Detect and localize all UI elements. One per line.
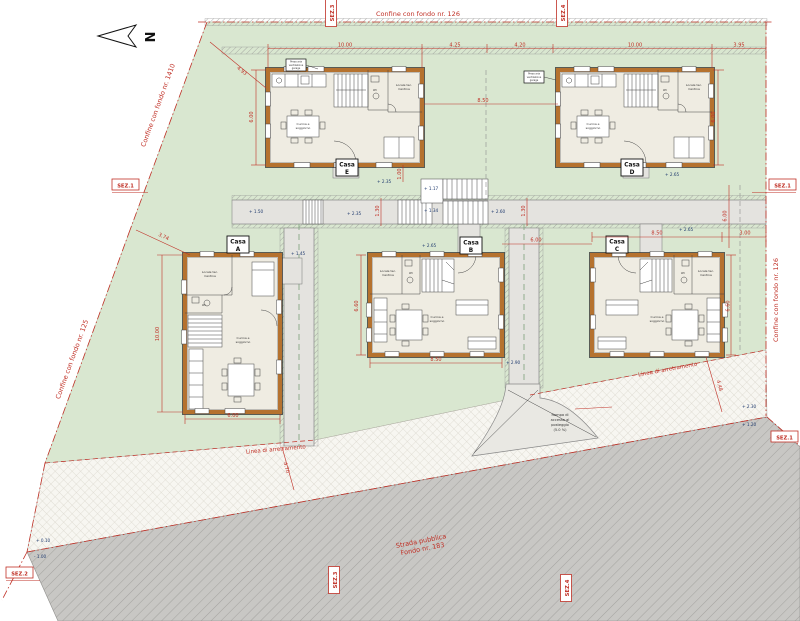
- dim-label: 1.30: [375, 205, 381, 216]
- elevation-label: + 2.65: [679, 227, 693, 232]
- casa-c-letter: C: [615, 247, 619, 253]
- tag-casa-b: Casa B: [460, 237, 482, 254]
- elevation-label: + 2.35: [377, 179, 391, 184]
- room-label-tech: Cantina: [204, 274, 216, 278]
- tag-casa-d: Casa D: [621, 159, 643, 176]
- entry-casa-c: [640, 224, 662, 255]
- casa-d-letter: D: [630, 170, 635, 176]
- room-label-living: soggiorno: [430, 319, 445, 323]
- tag-casa-e: Casa E: [336, 159, 358, 176]
- elevation-label: + 1.50: [249, 209, 263, 214]
- room-label-wc: WC: [681, 272, 685, 275]
- boundary-label-top: Confine con fondo nr. 126: [376, 10, 460, 18]
- sez1-label: SEZ.1: [117, 184, 134, 190]
- elevation-label: + 1.45: [291, 251, 305, 256]
- ramp-label-line: Rampa di: [551, 413, 568, 417]
- room-label-living: soggiorno: [586, 126, 601, 130]
- dim-label: 6.00: [530, 238, 541, 244]
- casa-a-plan: Locale tec. Cantina WC Cucina e soggiorn…: [182, 252, 283, 415]
- ramp-label-line: (5.0 %): [553, 428, 567, 432]
- elevation-label: + 2.65: [422, 243, 436, 248]
- tag-casa-c: Casa C: [606, 236, 628, 253]
- vent-note-line: garage: [292, 67, 301, 70]
- dim-label: 8.50: [430, 357, 441, 363]
- dim-label: 4.20: [514, 43, 525, 49]
- section-marker-sez3-top: SEZ.3: [326, 0, 337, 27]
- elevation-label: + 2.30: [742, 404, 756, 409]
- north-arrow: N: [98, 25, 156, 47]
- tag-casa-a: Casa A: [227, 236, 249, 253]
- dim-label: 8.50: [477, 98, 488, 104]
- boundary-label-right: Confine con fondo nr. 126: [772, 258, 780, 342]
- dim-label: 6.60: [726, 300, 732, 311]
- room-label-tech: Cantina: [398, 87, 410, 91]
- sez3-label: SEZ.3: [330, 4, 336, 21]
- casa-b-label: Casa: [463, 241, 479, 247]
- vent-note-line: garage: [530, 79, 539, 82]
- site-plan-drawing: Locale tec. Cantina WC Cucina e soggiorn…: [0, 0, 800, 621]
- casa-b-plan: Locale tec. Cantina WC Cucina e soggiorn…: [367, 252, 505, 358]
- dim-label: 8.50: [651, 231, 662, 237]
- elevation-label: + 2.65: [665, 172, 679, 177]
- north-letter: N: [141, 32, 156, 43]
- dim-label: 6.00: [227, 413, 238, 419]
- dim-label: 6.60: [354, 300, 360, 311]
- site-plan-canvas: Locale tec. Cantina WC Cucina e soggiorn…: [0, 0, 800, 621]
- room-label-wc: WC: [373, 89, 377, 92]
- casa-c-plan: Locale tec. Cantina WC Cucina e soggiorn…: [590, 252, 728, 358]
- room-label-tech: Cantina: [382, 273, 394, 277]
- section-marker-sez1-left: SEZ.1: [112, 179, 148, 193]
- ramp-label-line: posteggio: [551, 423, 569, 427]
- elevation-label: + 1.34: [424, 208, 438, 213]
- dim-label: 3.00: [739, 231, 750, 237]
- casa-e-plan: Locale tec. Cantina WC Cucina e soggiorn…: [266, 67, 425, 168]
- dim-label: 10.00: [155, 327, 161, 341]
- section-marker-sez4-bottom: SEZ.4: [561, 575, 572, 602]
- dim-label: 6.00: [711, 111, 717, 122]
- north-arrow-icon-outline: [98, 25, 136, 47]
- elevation-label: + 0.10: [36, 538, 50, 543]
- dim-label: 10.00: [628, 43, 642, 49]
- dim-label: 6.00: [249, 111, 255, 122]
- casa-c-label: Casa: [609, 240, 625, 246]
- ramp-label: Rampa di accesso al posteggio (5.0 %): [551, 413, 570, 432]
- dim-label: 4.25: [449, 43, 460, 49]
- elevation-label: + 2.60: [491, 209, 505, 214]
- upper-walk-strip: [222, 47, 766, 54]
- casa-e-letter: E: [345, 170, 349, 176]
- entry-casa-a: [280, 258, 302, 284]
- section-marker-sez4-top: SEZ.4: [557, 0, 568, 27]
- casa-a-letter: A: [236, 247, 241, 253]
- elevation-label: + 2.35: [347, 211, 361, 216]
- dim-label: 6.00: [723, 210, 729, 221]
- room-label-tech: Cantina: [688, 87, 700, 91]
- elevation-label: + 1.17: [424, 186, 438, 191]
- dim-label: 1.30: [521, 205, 527, 216]
- ramp-label-line: accesso al: [551, 418, 570, 422]
- sez1-label: SEZ.1: [774, 184, 791, 190]
- room-label-living: soggiorno: [650, 319, 665, 323]
- room-label-wc: WC: [202, 304, 206, 307]
- casa-e-label: Casa: [339, 163, 355, 169]
- room-label-living: soggiorno: [296, 126, 311, 130]
- room-label-living: soggiorno: [236, 340, 251, 344]
- sez1-label: SEZ.1: [776, 436, 793, 442]
- sez2-label: SEZ.2: [11, 572, 28, 578]
- casa-d-label: Casa: [624, 163, 640, 169]
- section-marker-sez1-right-bottom: SEZ.1: [771, 431, 798, 442]
- casa-d-plan: Locale tec. Cantina WC Cucina e soggiorn…: [556, 67, 715, 168]
- elevation-label: + 1.20: [742, 422, 756, 427]
- section-marker-sez3-bottom: SEZ.3: [329, 567, 340, 594]
- sez4-label: SEZ.4: [561, 4, 567, 21]
- elevation-label: - 1.00: [34, 554, 47, 559]
- dim-label: 10.00: [338, 43, 352, 49]
- sez4-label: SEZ.4: [565, 579, 571, 596]
- dim-label: 3.95: [733, 43, 744, 49]
- elevation-label: + 2.90: [506, 360, 520, 365]
- casa-b-letter: B: [469, 248, 474, 254]
- room-label-wc: WC: [409, 272, 413, 275]
- room-label-wc: WC: [663, 89, 667, 92]
- dim-label: 1.00: [397, 168, 403, 179]
- room-label-tech: Cantina: [700, 273, 712, 277]
- sez3-label: SEZ.3: [333, 571, 339, 588]
- casa-a-label: Casa: [230, 240, 246, 246]
